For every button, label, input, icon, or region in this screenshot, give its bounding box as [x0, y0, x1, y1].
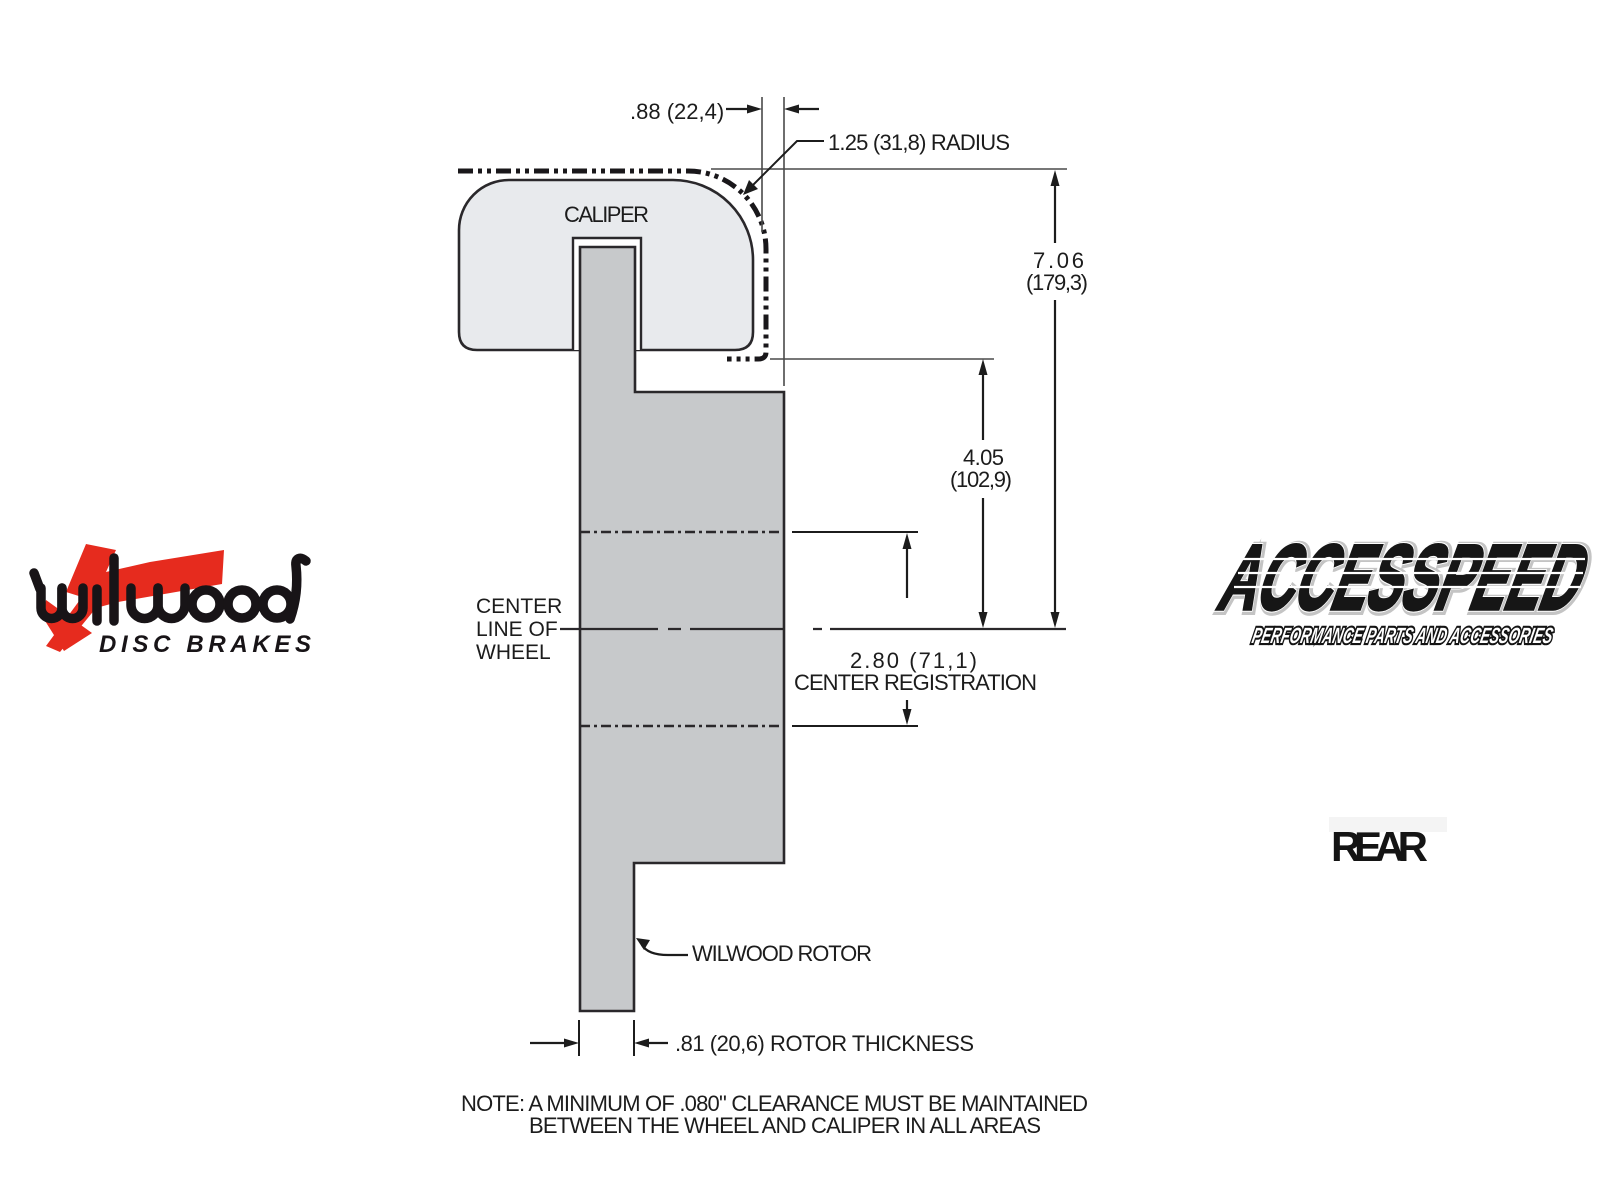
svg-text:REAR: REAR	[1331, 823, 1428, 870]
svg-text:BETWEEN THE WHEEL AND CALIPER: BETWEEN THE WHEEL AND CALIPER IN ALL ARE…	[529, 1113, 1041, 1138]
svg-text:CALIPER: CALIPER	[564, 202, 649, 227]
svg-text:LINE OF: LINE OF	[476, 618, 558, 641]
svg-text:ACCESSPEED: ACCESSPEED	[1208, 526, 1600, 629]
svg-text:CENTER REGISTRATION: CENTER REGISTRATION	[794, 670, 1037, 695]
svg-text:.81 (20,6) ROTOR THICKNESS: .81 (20,6) ROTOR THICKNESS	[675, 1031, 974, 1056]
svg-text:1.25 (31,8) RADIUS: 1.25 (31,8) RADIUS	[828, 130, 1010, 155]
svg-text:CENTER: CENTER	[476, 595, 562, 618]
svg-text:.88 (22,4): .88 (22,4)	[630, 99, 724, 124]
svg-text:PERFORMANCE PARTS AND ACCESSOR: PERFORMANCE PARTS AND ACCESSORIES	[1250, 623, 1556, 648]
svg-text:(179,3): (179,3)	[1026, 270, 1088, 295]
svg-text:(102,9): (102,9)	[950, 467, 1012, 492]
svg-text:WHEEL: WHEEL	[476, 641, 551, 664]
svg-text:WILWOOD ROTOR: WILWOOD ROTOR	[692, 941, 872, 966]
